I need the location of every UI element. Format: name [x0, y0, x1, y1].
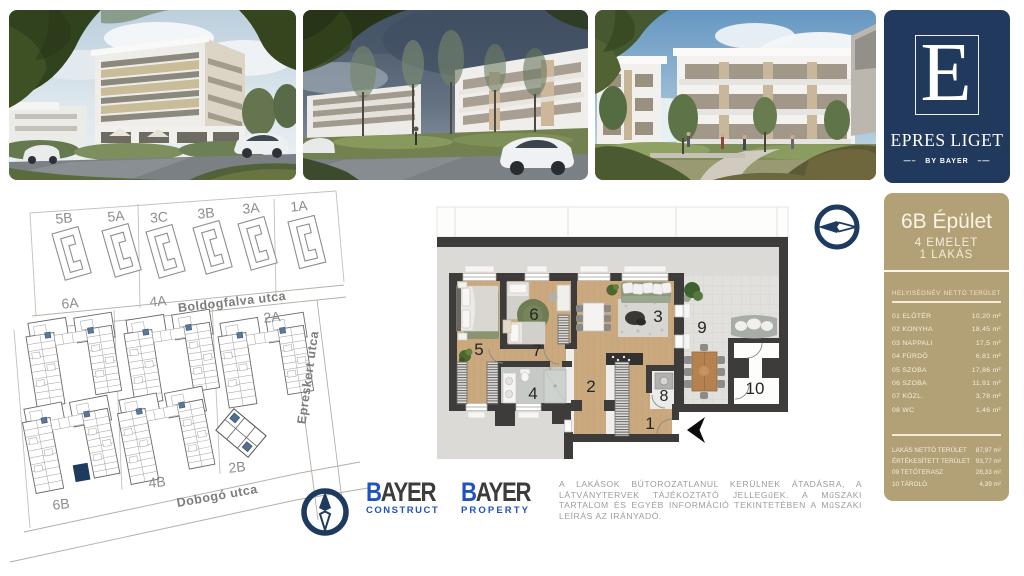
svg-text:3: 3 — [653, 307, 662, 326]
svg-text:6: 6 — [529, 305, 538, 324]
svg-text:8: 8 — [660, 388, 669, 405]
svg-text:2: 2 — [586, 377, 595, 396]
svg-text:7: 7 — [532, 341, 541, 360]
svg-text:5: 5 — [474, 340, 483, 359]
svg-text:9: 9 — [697, 318, 706, 337]
svg-text:1: 1 — [645, 414, 654, 433]
svg-text:10: 10 — [746, 379, 765, 398]
svg-text:4: 4 — [528, 384, 537, 403]
